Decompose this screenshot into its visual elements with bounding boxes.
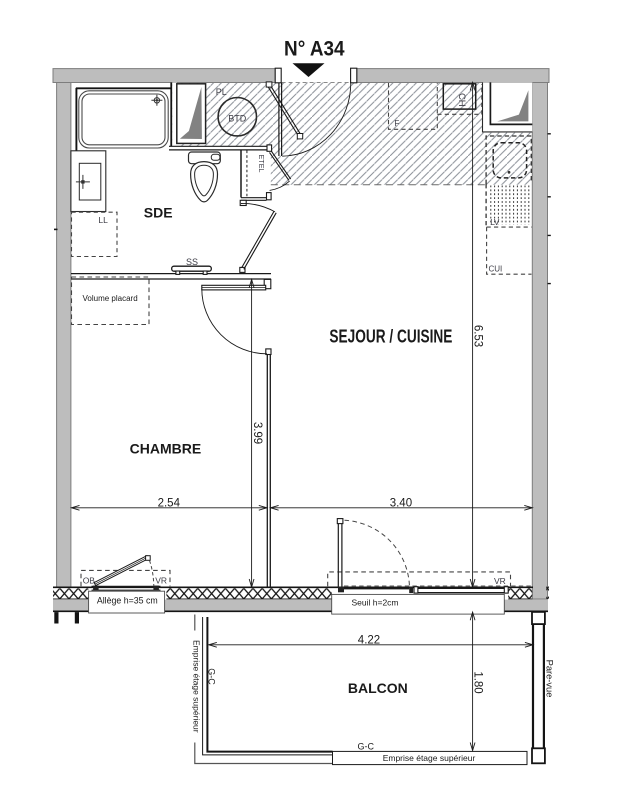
svg-text:Seuil h=2cm: Seuil h=2cm — [352, 597, 399, 607]
svg-text:Emprise étage supérieur: Emprise étage supérieur — [191, 640, 201, 733]
svg-text:N° A34: N° A34 — [284, 37, 345, 60]
svg-text:SS: SS — [186, 257, 198, 267]
svg-text:G-C: G-C — [207, 668, 217, 685]
svg-text:LV: LV — [490, 218, 500, 227]
svg-text:BALCON: BALCON — [348, 680, 408, 696]
svg-text:2.54: 2.54 — [158, 498, 181, 510]
svg-text:SDE: SDE — [144, 205, 173, 221]
svg-text:3.40: 3.40 — [390, 498, 412, 510]
svg-text:Allège h=35 cm: Allège h=35 cm — [97, 596, 158, 606]
svg-text:ETEL: ETEL — [257, 155, 266, 173]
svg-text:CUI: CUI — [489, 265, 503, 274]
svg-text:PL: PL — [216, 87, 227, 97]
svg-text:SEJOUR / CUISINE: SEJOUR / CUISINE — [329, 326, 452, 346]
svg-text:CHAMBRE: CHAMBRE — [130, 441, 202, 457]
svg-text:Pare-vue: Pare-vue — [545, 660, 555, 698]
svg-text:LL: LL — [98, 215, 108, 225]
svg-text:VR: VR — [155, 576, 167, 586]
svg-text:Volume placard: Volume placard — [83, 294, 138, 303]
svg-text:3.99: 3.99 — [251, 422, 263, 444]
svg-text:OB: OB — [83, 576, 96, 586]
svg-text:VR: VR — [494, 576, 506, 586]
svg-text:CH: CH — [456, 93, 467, 107]
svg-text:G-C: G-C — [358, 742, 375, 752]
svg-text:F: F — [394, 119, 399, 128]
svg-text:Emprise étage supérieur: Emprise étage supérieur — [383, 753, 476, 763]
svg-text:6.53: 6.53 — [472, 325, 484, 347]
svg-text:BTD: BTD — [228, 113, 247, 123]
svg-text:1.80: 1.80 — [472, 671, 484, 693]
svg-text:4.22: 4.22 — [358, 635, 380, 647]
